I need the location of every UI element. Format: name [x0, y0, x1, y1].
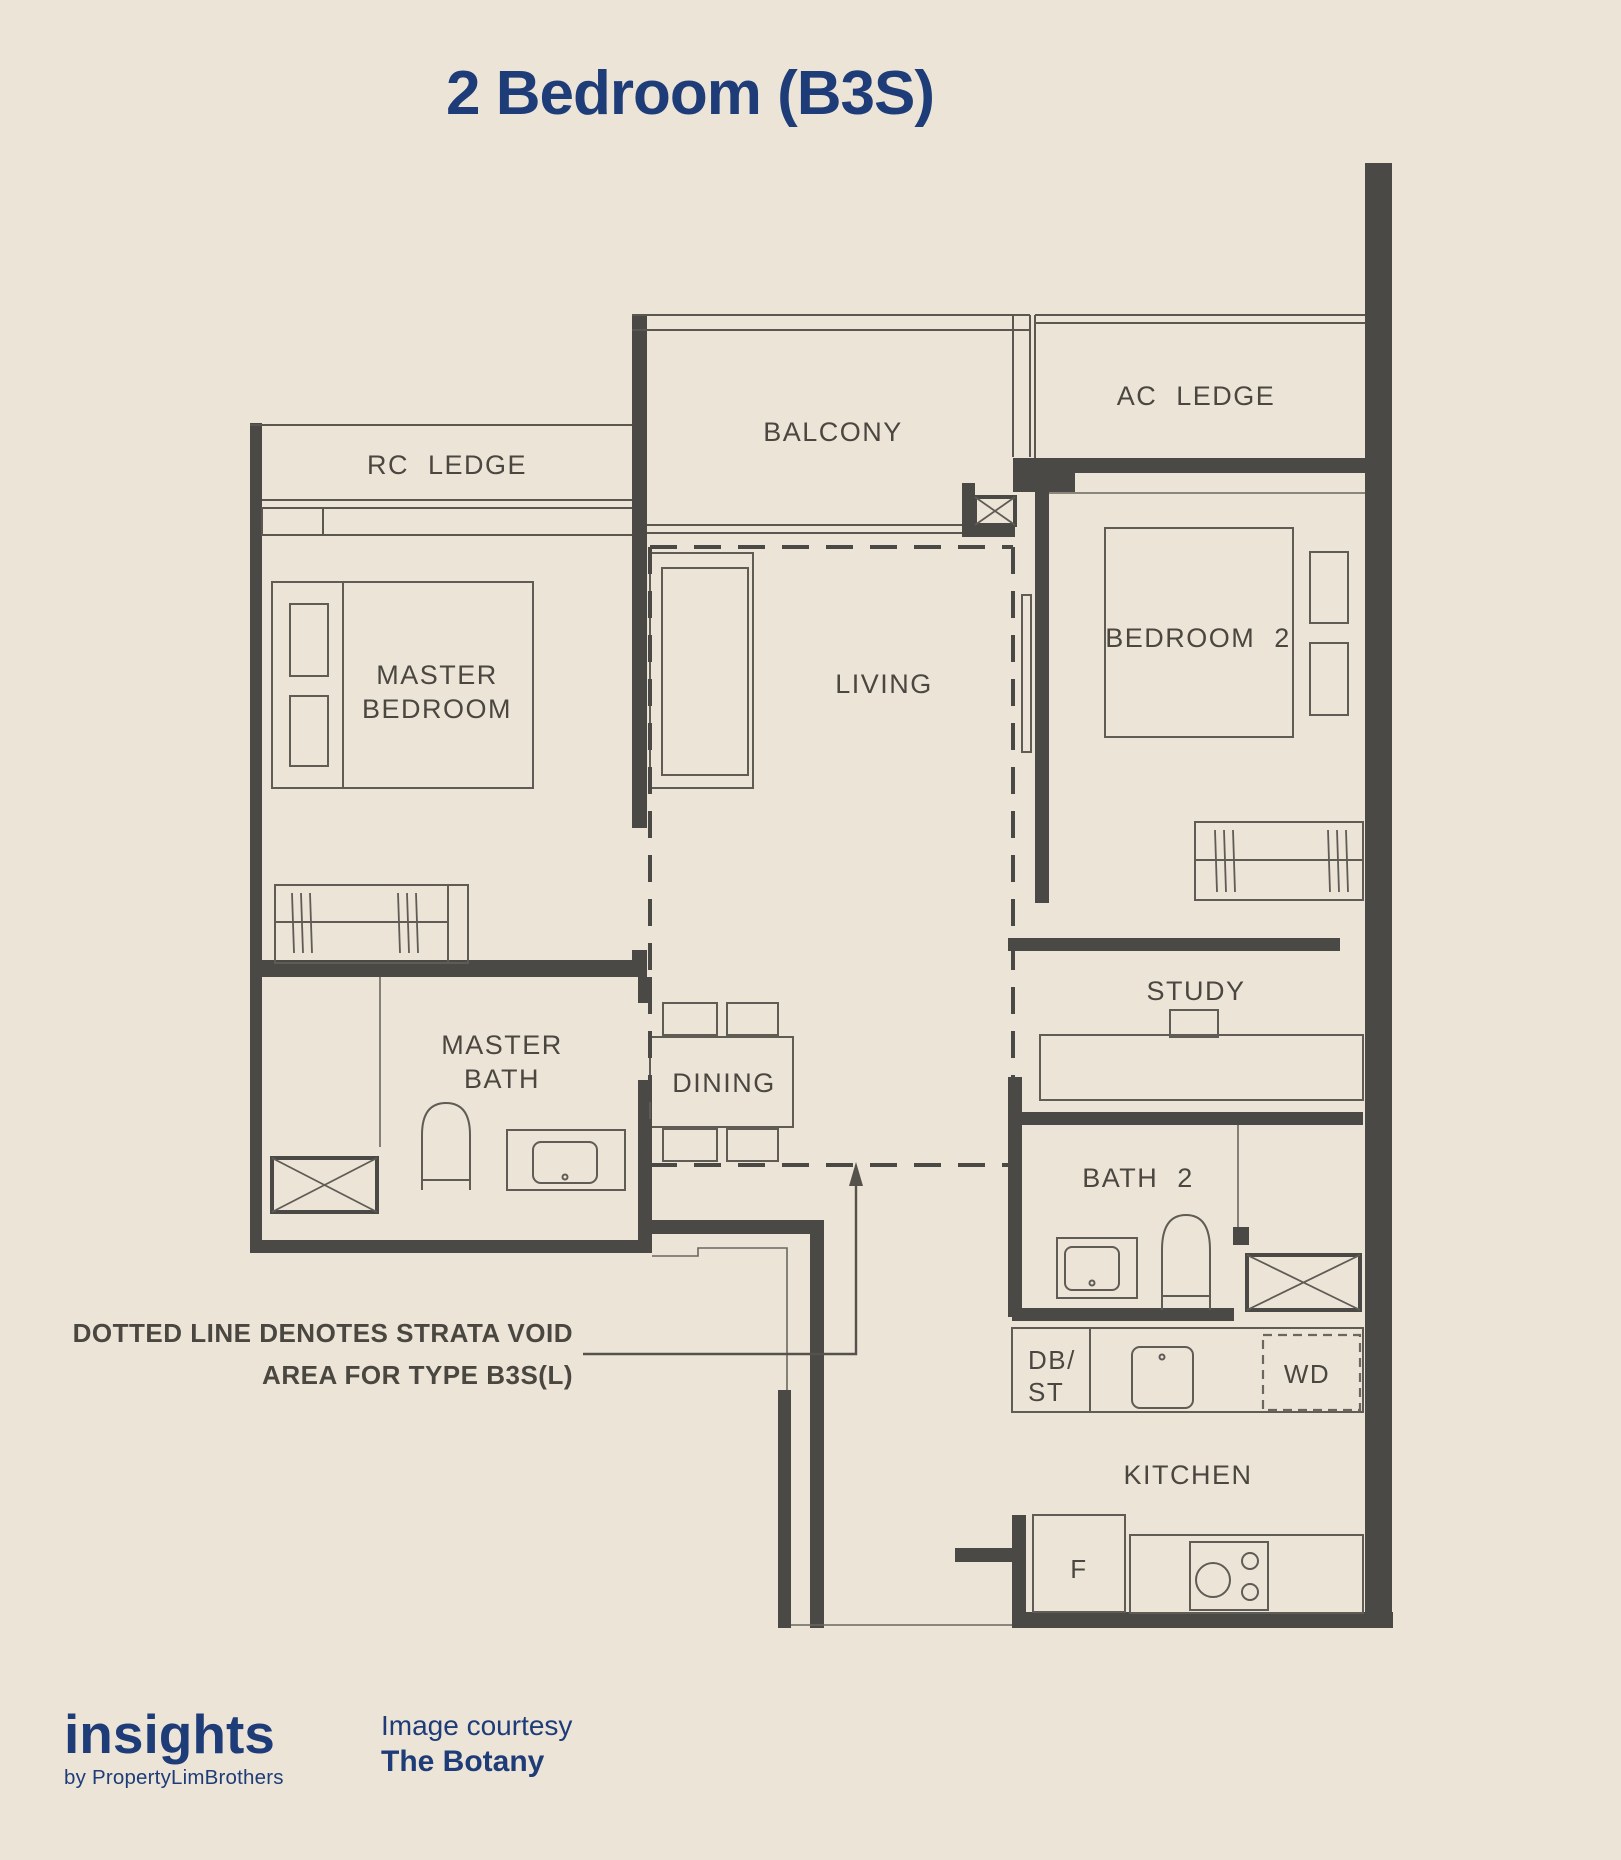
label-wd: WD	[1284, 1359, 1330, 1389]
strata-void-annotation: DOTTED LINE DENOTES STRATA VOID AREA FOR…	[73, 1318, 573, 1390]
label-study: STUDY	[1146, 976, 1245, 1006]
study-desk	[1040, 1010, 1363, 1100]
floor-plan-page: 2 Bedroom (B3S)	[0, 0, 1621, 1860]
balcony-shaft-box	[975, 497, 1015, 525]
label-fridge: F	[1070, 1554, 1087, 1584]
living-tv-console	[1022, 595, 1031, 752]
bath2-shower-box	[1247, 1255, 1360, 1310]
insights-logo-wordmark: insights	[64, 1706, 284, 1764]
label-bath-2: BATH 2	[1082, 1163, 1194, 1193]
label-db-1: DB/	[1028, 1345, 1076, 1375]
label-db-2: ST	[1028, 1377, 1064, 1407]
living-sofa	[650, 553, 753, 788]
master-bedroom-wardrobe	[275, 885, 468, 963]
label-dining: DINING	[672, 1068, 776, 1098]
bedroom2-wardrobe	[1195, 822, 1363, 900]
label-bedroom-2: BEDROOM 2	[1105, 623, 1291, 653]
label-rc-ledge: RC LEDGE	[367, 450, 527, 480]
insights-logo-byline: by PropertyLimBrothers	[64, 1766, 284, 1790]
label-master-bedroom-2: BEDROOM	[362, 694, 512, 724]
floor-plan-drawing: RC LEDGE BALCONY AC LEDGE MASTER BEDROOM…	[0, 0, 1621, 1860]
bath2-fixtures	[1057, 1125, 1238, 1310]
label-ac-ledge: AC LEDGE	[1117, 381, 1276, 411]
label-master-bedroom-1: MASTER	[376, 660, 498, 690]
label-balcony: BALCONY	[763, 417, 903, 447]
label-master-bath-2: BATH	[464, 1064, 540, 1094]
label-master-bath-1: MASTER	[441, 1030, 563, 1060]
label-living: LIVING	[835, 669, 933, 699]
image-courtesy-block: Image courtesy The Botany	[381, 1709, 572, 1780]
annotation-line-1: DOTTED LINE DENOTES STRATA VOID	[73, 1318, 573, 1348]
insights-logo: insights by PropertyLimBrothers	[64, 1706, 284, 1790]
label-kitchen: KITCHEN	[1123, 1460, 1252, 1490]
annotation-line-2: AREA FOR TYPE B3S(L)	[262, 1360, 573, 1390]
master-bath-shower-box	[272, 1158, 377, 1212]
image-courtesy-name: The Botany	[381, 1743, 572, 1781]
image-courtesy-label: Image courtesy	[381, 1709, 572, 1743]
